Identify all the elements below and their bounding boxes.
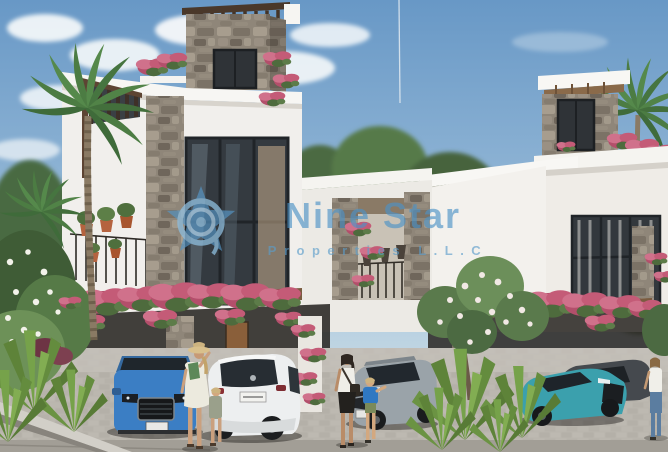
car-white-suv — [208, 354, 300, 440]
watermark-brand-name: Nine Star — [285, 195, 461, 236]
watermark-brand-subtitle: Properties L.L.C — [268, 243, 488, 258]
villa-left-stone-column — [146, 96, 184, 306]
property-photo: Nine Star Properties L.L.C — [0, 0, 668, 452]
stone-pier — [632, 226, 654, 306]
villa-right-windows — [572, 216, 668, 306]
roof-planter — [140, 76, 186, 83]
license-plate — [146, 422, 168, 431]
